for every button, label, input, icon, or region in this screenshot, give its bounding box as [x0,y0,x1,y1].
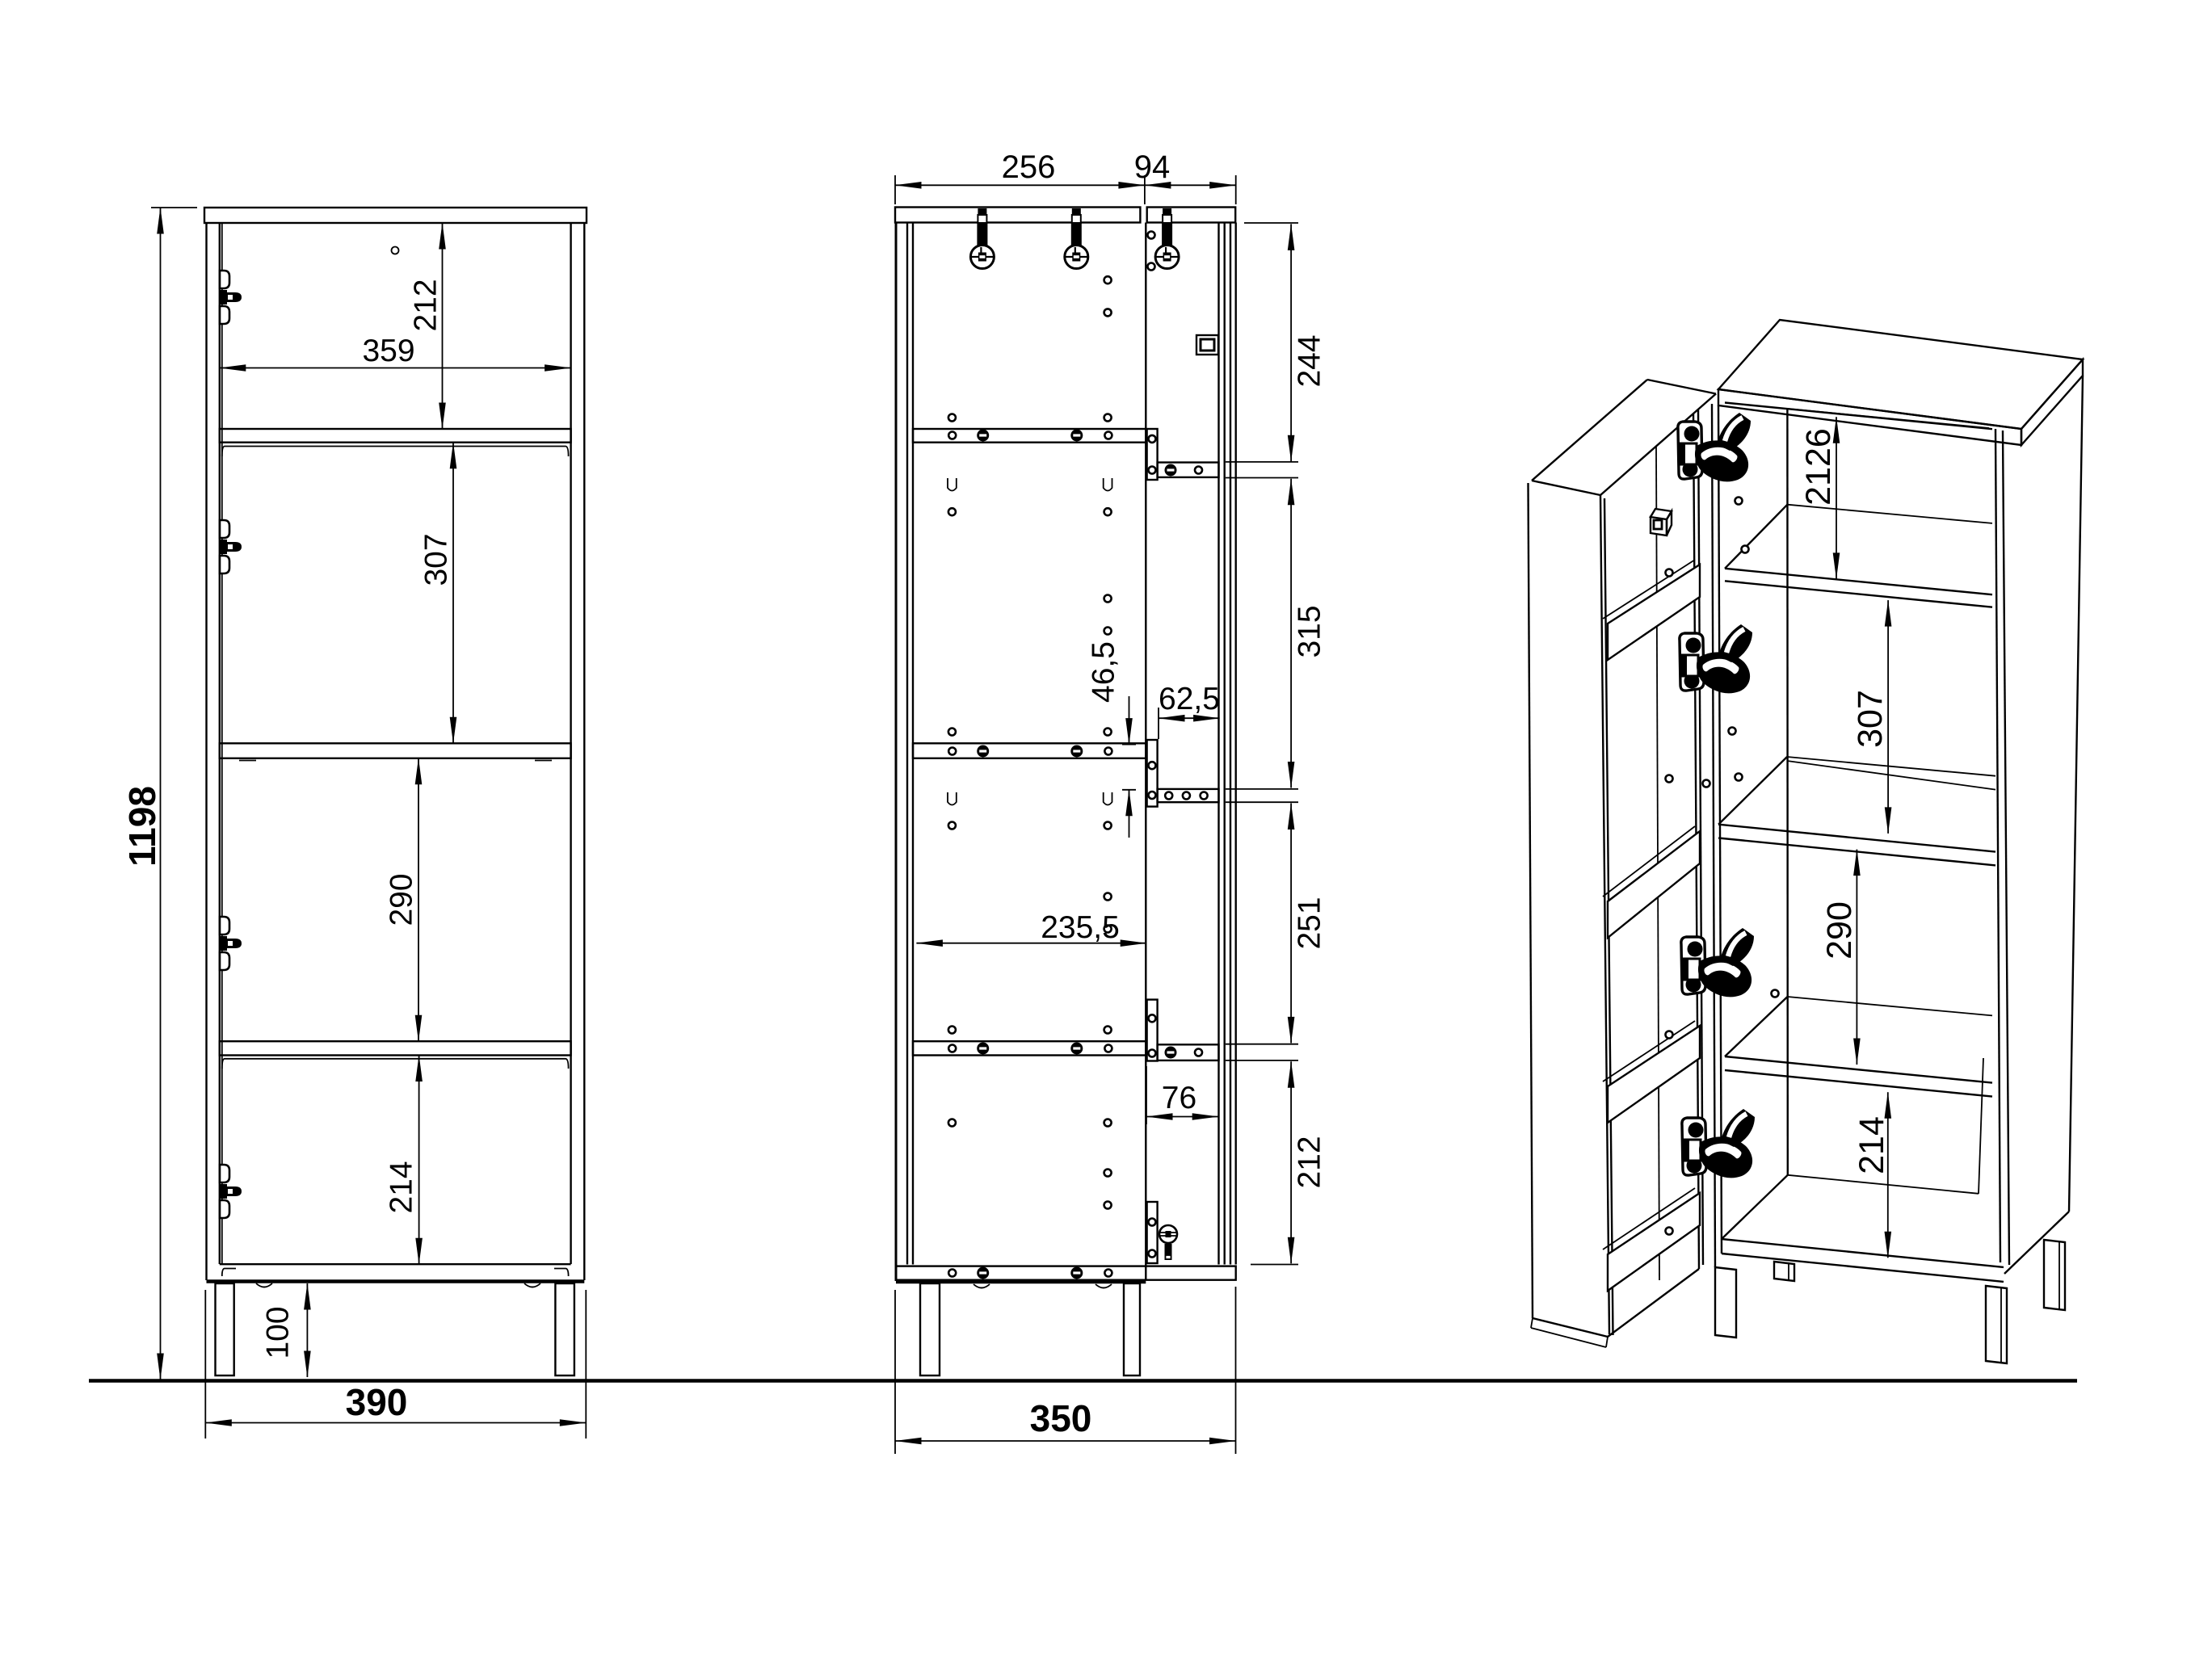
svg-text:290: 290 [1820,901,1859,960]
svg-text:94: 94 [1134,149,1171,185]
svg-text:235,5: 235,5 [1041,910,1120,945]
svg-text:350: 350 [1030,1397,1092,1439]
svg-text:62,5: 62,5 [1159,682,1220,716]
svg-text:307: 307 [1851,690,1890,748]
svg-text:256: 256 [1002,149,1056,185]
svg-text:214: 214 [385,1161,419,1213]
svg-text:290: 290 [385,873,419,926]
svg-text:251: 251 [1293,897,1327,949]
svg-text:244: 244 [1293,334,1327,387]
svg-text:315: 315 [1293,605,1327,657]
svg-text:2126: 2126 [1799,428,1838,506]
svg-text:100: 100 [261,1306,296,1359]
svg-text:359: 359 [362,334,414,368]
svg-text:212: 212 [1293,1136,1327,1188]
svg-text:390: 390 [346,1381,408,1423]
svg-text:1198: 1198 [121,786,163,867]
svg-text:307: 307 [419,533,454,586]
svg-text:212: 212 [409,279,444,331]
svg-text:76: 76 [1162,1081,1196,1115]
svg-text:46,5: 46,5 [1087,641,1121,703]
svg-text:214: 214 [1852,1116,1891,1174]
